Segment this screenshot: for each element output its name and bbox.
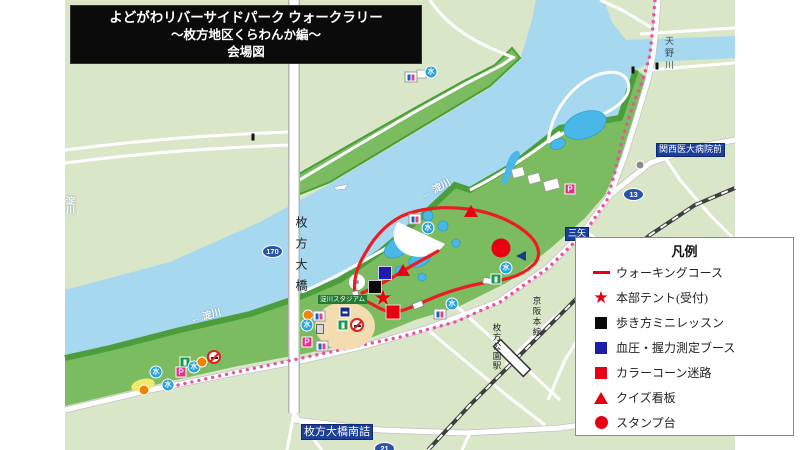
busstop-icon bbox=[656, 63, 659, 70]
route-shield-170: 170 bbox=[262, 245, 283, 258]
landmark-icon bbox=[636, 161, 645, 170]
legend-item-1: ★本部テント(受付) bbox=[576, 285, 793, 310]
legend-item-label: クイズ看板 bbox=[616, 389, 676, 406]
water-icon: 水 bbox=[422, 222, 435, 235]
river-label-vertical: 淀川 bbox=[64, 196, 77, 214]
legend-item-label: 歩き方ミニレッスン bbox=[616, 314, 724, 331]
line-symbol bbox=[586, 271, 616, 274]
quiz-marker bbox=[396, 264, 410, 276]
restroom-icon bbox=[313, 311, 326, 322]
legend-item-3: 血圧・握力測定ブース bbox=[576, 335, 793, 360]
restroom-icon bbox=[405, 72, 418, 83]
bridge-label: 枚方大橋 bbox=[293, 216, 310, 300]
map-title-box: よどがわリバーサイドパーク ウォークラリー 〜枚方地区くらわんか編〜 会場図 bbox=[70, 5, 422, 64]
water-icon: 水 bbox=[162, 379, 175, 392]
legend-item-2: 歩き方ミニレッスン bbox=[576, 310, 793, 335]
navy-icon bbox=[340, 307, 351, 318]
minamizume-bus-stop-label: 枚方大橋南詰 bbox=[301, 424, 373, 440]
water-icon: 水 bbox=[301, 319, 314, 332]
monument-icon bbox=[316, 324, 324, 334]
square-symbol bbox=[586, 317, 616, 329]
legend-item-label: 血圧・握力測定ブース bbox=[616, 339, 735, 356]
parking-icon: P bbox=[565, 184, 576, 195]
orange-icon bbox=[197, 357, 208, 368]
restroom-icon bbox=[316, 341, 329, 352]
nosmoke-icon bbox=[350, 318, 364, 332]
busstop-icon bbox=[252, 134, 255, 141]
restroom-icon bbox=[434, 309, 447, 320]
nosmoke-icon bbox=[207, 350, 221, 364]
busstop-icon bbox=[632, 67, 635, 74]
legend-box: 凡例 ウォーキングコース★本部テント(受付)歩き方ミニレッスン血圧・握力測定ブー… bbox=[575, 237, 794, 436]
title-line-2: 〜枚方地区くらわんか編〜 bbox=[71, 27, 421, 44]
square-symbol bbox=[586, 367, 616, 379]
title-line-3: 会場図 bbox=[71, 44, 421, 61]
legend-item-label: スタンプ台 bbox=[616, 414, 676, 431]
stamp-marker bbox=[492, 239, 511, 258]
orange-icon bbox=[139, 385, 150, 396]
legend-item-5: クイズ看板 bbox=[576, 385, 793, 410]
keihan-line-label: 京阪本線 bbox=[531, 296, 543, 338]
hospital-bus-stop-label: 関西医大病院前 bbox=[656, 143, 725, 157]
route-shield-13: 13 bbox=[623, 188, 644, 201]
parking-icon: P bbox=[302, 337, 313, 348]
water-icon: 水 bbox=[425, 66, 438, 79]
green-icon bbox=[338, 320, 349, 331]
circle-symbol bbox=[586, 416, 616, 429]
legend-item-label: カラーコーン迷路 bbox=[616, 364, 711, 381]
star-symbol: ★ bbox=[586, 289, 616, 306]
legend-item-0: ウォーキングコース bbox=[576, 260, 793, 285]
amano-river-label: 天野川 bbox=[663, 36, 676, 72]
green-icon bbox=[491, 274, 502, 285]
legend-item-6: スタンプ台 bbox=[576, 410, 793, 435]
water-icon: 水 bbox=[446, 298, 459, 311]
water-icon: 水 bbox=[150, 366, 163, 379]
station-label: 枚方公園駅 bbox=[491, 323, 503, 371]
parking-icon: P bbox=[176, 367, 187, 378]
title-line-1: よどがわリバーサイドパーク ウォークラリー bbox=[71, 9, 421, 27]
route-shield-21: 21 bbox=[374, 442, 395, 450]
stadium-label: 淀川スタジアム bbox=[318, 295, 367, 304]
triangle-symbol bbox=[586, 392, 616, 404]
square-symbol bbox=[586, 342, 616, 354]
restroom-icon bbox=[409, 214, 422, 225]
quiz-marker bbox=[464, 205, 478, 217]
venue-map-page: ← 淀川 ← 淀川 淀川 枚方大橋 天野川 京阪本線 枚方公園駅 関西医大病院前… bbox=[0, 0, 800, 450]
legend-title: 凡例 bbox=[576, 241, 793, 260]
legend-item-label: 本部テント(受付) bbox=[616, 289, 708, 306]
legend-item-4: カラーコーン迷路 bbox=[576, 360, 793, 385]
yacht-icon bbox=[516, 251, 526, 261]
maze-marker bbox=[386, 305, 401, 320]
bp-marker bbox=[378, 266, 392, 280]
legend-item-label: ウォーキングコース bbox=[616, 264, 723, 281]
legend-items: ウォーキングコース★本部テント(受付)歩き方ミニレッスン血圧・握力測定ブースカラ… bbox=[576, 260, 793, 435]
